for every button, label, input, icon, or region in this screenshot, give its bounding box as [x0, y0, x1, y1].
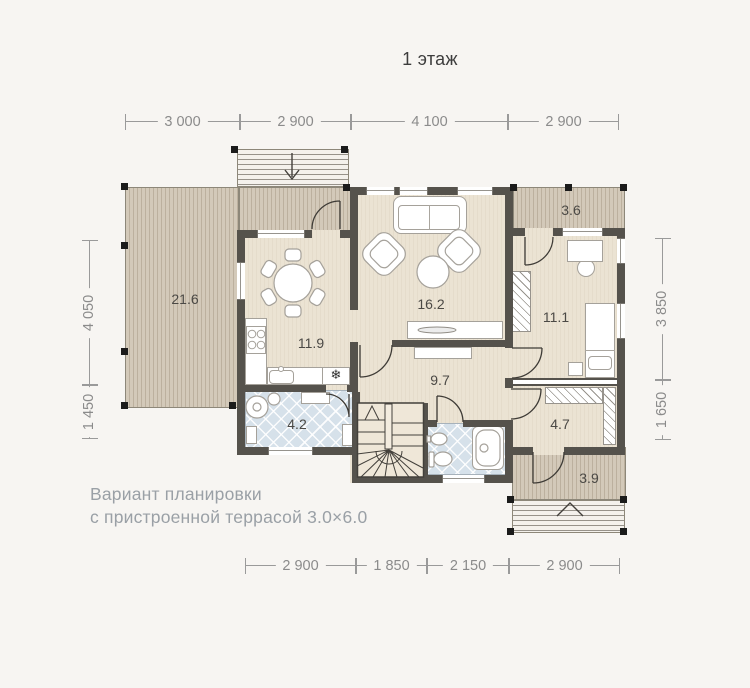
room-label-entry: 4.7: [530, 415, 590, 433]
plan-caption: Вариант планировки с пристроенной террас…: [90, 483, 367, 529]
wall-segment: [350, 195, 358, 310]
entry-wardrobe-right: [603, 387, 616, 445]
dimension-top-3: 4 100: [351, 114, 508, 130]
dimension-top-2: 2 900: [240, 114, 351, 130]
room-label-balcony: 3.6: [541, 201, 601, 219]
window: [268, 447, 313, 455]
partition-wall: [513, 378, 617, 386]
floor-plan-canvas: 1 этаж ❄: [0, 0, 750, 688]
window: [366, 187, 395, 195]
window: [237, 262, 245, 300]
post: [341, 146, 348, 153]
nightstand: [568, 362, 583, 376]
post: [121, 402, 128, 409]
post: [121, 183, 128, 190]
bed-blanket-line: [585, 350, 615, 351]
dimension-left-1: 4 050: [82, 240, 98, 385]
room-label-hall: 9.7: [410, 371, 470, 389]
dimension-bottom-3: 2 150: [427, 558, 509, 574]
post: [620, 184, 627, 191]
post: [343, 184, 350, 191]
entry-wardrobe-top: [545, 387, 603, 404]
wall-segment: [603, 228, 625, 236]
dimension-bottom-4: 2 900: [509, 558, 620, 574]
window: [442, 475, 485, 483]
wall-segment: [347, 385, 352, 392]
wall-segment: [421, 403, 428, 475]
window: [257, 230, 305, 238]
page-title: 1 этаж: [330, 49, 530, 70]
wall-segment: [505, 378, 513, 388]
post: [565, 184, 572, 191]
wall-segment: [505, 340, 513, 348]
post: [510, 184, 517, 191]
wall-segment: [352, 475, 512, 483]
stove: [246, 326, 266, 354]
window: [617, 238, 625, 264]
kitchen-sink: [269, 370, 294, 384]
post: [620, 528, 627, 535]
post: [121, 242, 128, 249]
pillow: [588, 356, 612, 370]
room-label-bedroom: 11.1: [526, 308, 586, 326]
dimension-top-1: 3 000: [125, 114, 240, 130]
post: [620, 496, 627, 503]
caption-line-1: Вариант планировки: [90, 483, 367, 506]
wall-segment: [305, 230, 312, 238]
post: [507, 496, 514, 503]
wall-segment: [564, 447, 625, 455]
porch-entry-stairs: [512, 500, 625, 533]
bathroom-shelf: [301, 392, 330, 404]
tv-console: [407, 321, 503, 339]
dimension-bottom-2: 1 850: [356, 558, 427, 574]
bathroom-cabinet-left: [246, 426, 257, 444]
window: [562, 228, 603, 236]
room-label-bathroom: 4.2: [267, 415, 327, 433]
window: [457, 187, 493, 195]
room-label-living: 16.2: [401, 295, 461, 313]
post: [507, 528, 514, 535]
post: [121, 348, 128, 355]
dimension-bottom-1: 2 900: [245, 558, 356, 574]
wall-segment: [352, 392, 360, 483]
caption-line-2: с пристроенной террасой 3.0×6.0: [90, 506, 367, 529]
desk: [567, 240, 603, 262]
sofa-cushion-divider: [429, 205, 430, 230]
window: [399, 187, 428, 195]
wall-segment: [463, 420, 507, 427]
post: [229, 402, 236, 409]
shower: [472, 426, 504, 470]
window: [617, 303, 625, 339]
snowflake-icon: ❄: [323, 368, 349, 384]
wall-segment: [505, 447, 533, 455]
dimension-right-2: 1 650: [655, 380, 671, 440]
wall-segment: [553, 228, 562, 236]
dimension-top-4: 2 900: [508, 114, 619, 130]
room-label-kitchen: 11.9: [281, 334, 341, 352]
room-label-terrace: 21.6: [155, 290, 215, 308]
fridge: ❄: [322, 367, 350, 385]
terrace-entry-stairs: [237, 149, 349, 187]
wall-segment: [505, 195, 513, 340]
dimension-right-1: 3 850: [655, 238, 671, 380]
hall-sideboard: [414, 347, 472, 359]
post: [231, 146, 238, 153]
dimension-left-2: 1 450: [82, 385, 98, 439]
wall-segment: [245, 385, 326, 392]
wall-segment: [392, 340, 507, 347]
room-label-porch: 3.9: [559, 469, 619, 487]
